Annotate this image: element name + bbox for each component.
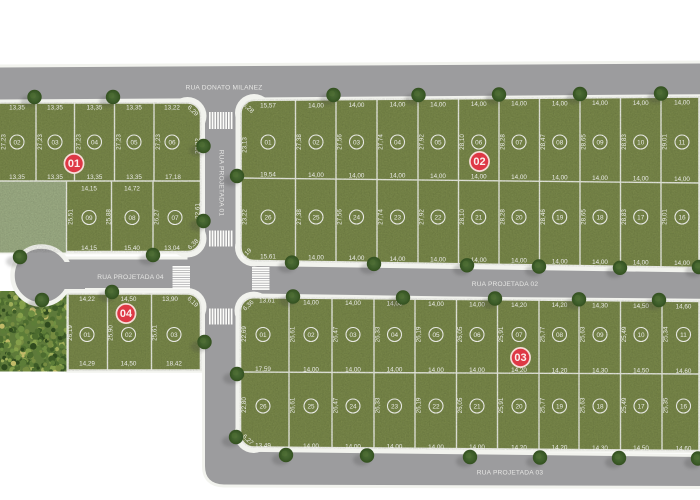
- svg-text:RUA DONATO MILANEZ: RUA DONATO MILANEZ: [186, 85, 263, 92]
- svg-text:RUA PROJETADA 03: RUA PROJETADA 03: [477, 470, 544, 477]
- svg-text:RUA PROJETADA 04: RUA PROJETADA 04: [97, 274, 164, 281]
- svg-text:03: 03: [514, 352, 526, 364]
- svg-text:01: 01: [68, 158, 80, 170]
- svg-text:RUA PROJETADA 02: RUA PROJETADA 02: [472, 281, 539, 288]
- svg-text:04: 04: [120, 308, 133, 320]
- svg-text:RUA PROJETADA 01: RUA PROJETADA 01: [218, 150, 225, 217]
- svg-text:02: 02: [473, 156, 485, 168]
